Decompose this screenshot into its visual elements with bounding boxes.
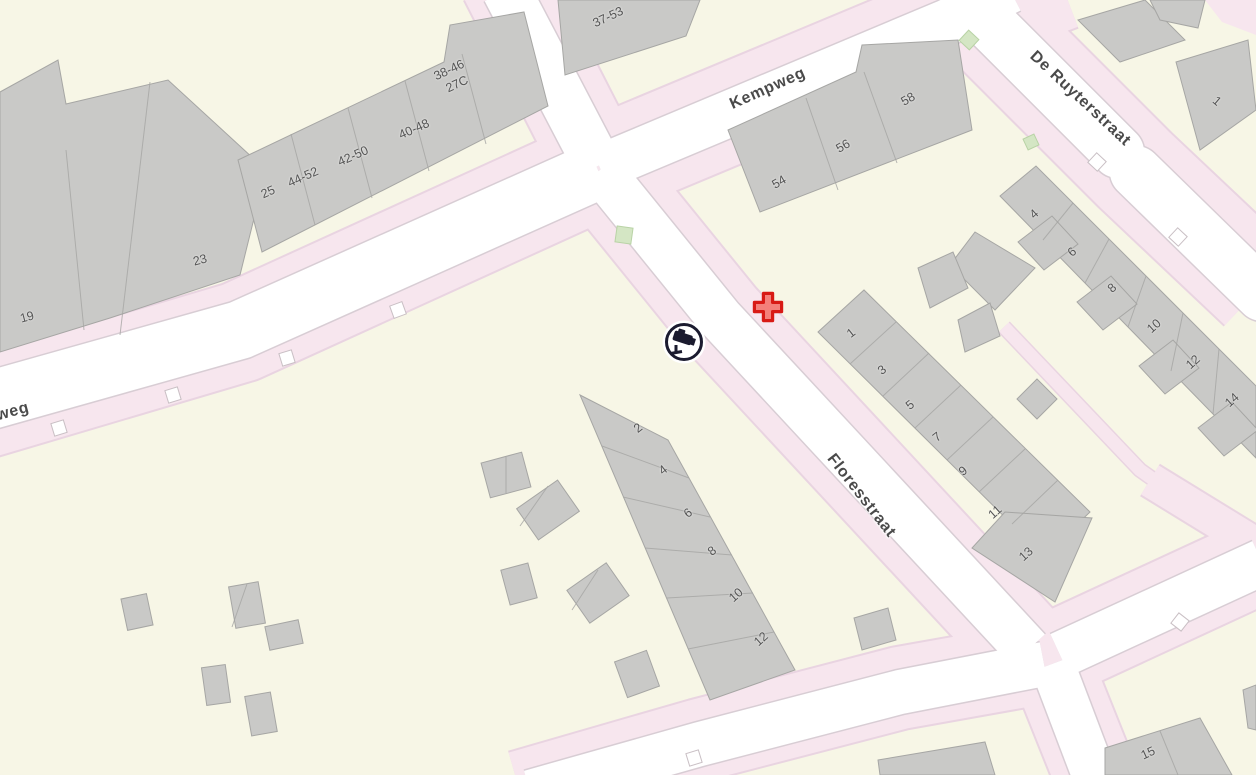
red-cross-icon [751, 290, 785, 324]
map-canvas [0, 0, 1256, 775]
map-viewport[interactable]: KempwegDe RuyterstraatFloresstraatweg 37… [0, 0, 1256, 775]
cctv-camera-icon [661, 319, 707, 365]
